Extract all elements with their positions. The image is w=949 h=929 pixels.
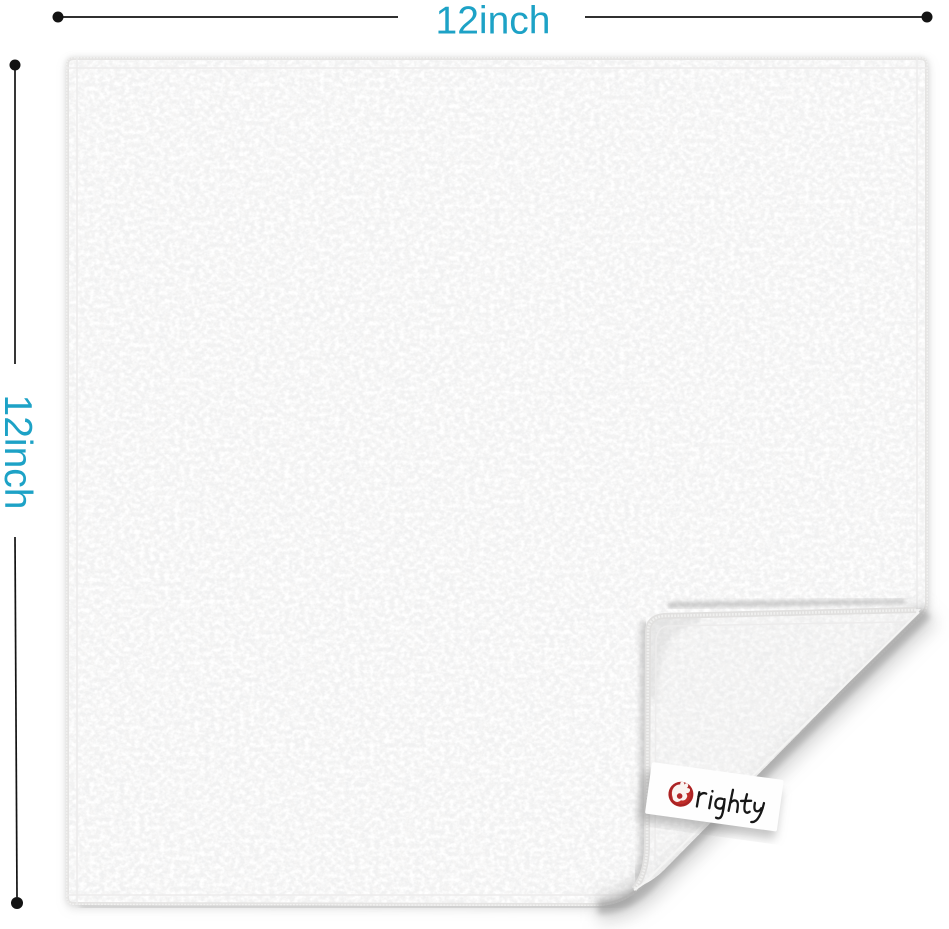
svg-text:12inch: 12inch: [436, 0, 551, 43]
svg-text:12inch: 12inch: [0, 395, 39, 510]
